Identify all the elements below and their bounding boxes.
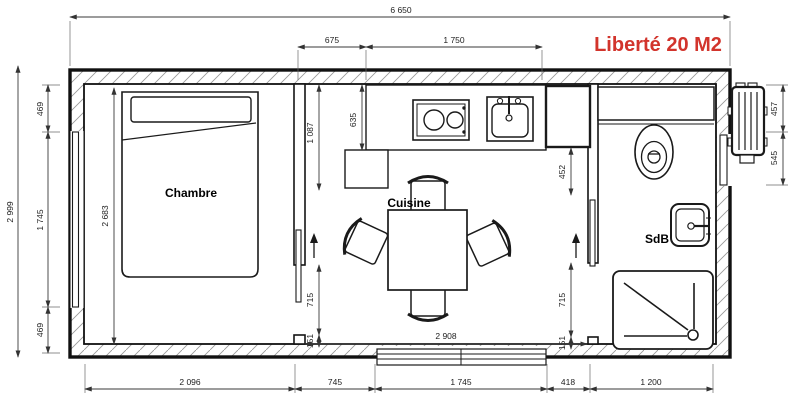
dim-top-kitchen-offset: 675 bbox=[325, 35, 339, 45]
dim-total-height: 2 999 bbox=[5, 201, 15, 223]
floorplan-page: Chambre bbox=[0, 0, 800, 411]
dim-heater-offset: 545 bbox=[769, 151, 779, 165]
plan-title: Liberté 20 M2 bbox=[594, 34, 722, 56]
dim-bottom-window-width: 1 745 bbox=[450, 377, 472, 387]
dim-bottom-bedroom-width: 2 096 bbox=[179, 377, 201, 387]
toilet-symbol bbox=[635, 125, 673, 179]
dim-bottom-bathroom-width: 1 200 bbox=[640, 377, 662, 387]
counter-return bbox=[345, 150, 388, 188]
hob-symbol bbox=[413, 100, 469, 140]
dim-left-wall-bottom: 469 bbox=[35, 323, 45, 337]
dim-bath-door-opening: 715 bbox=[557, 293, 567, 307]
bedroom-sliding-door bbox=[296, 230, 301, 302]
bedroom: Chambre bbox=[122, 92, 258, 277]
kitchen-label: Cuisine bbox=[387, 196, 431, 210]
dim-top-counter-width: 1 750 bbox=[443, 35, 465, 45]
pillow-symbol bbox=[131, 97, 251, 122]
kitchen-bay-window bbox=[377, 346, 546, 365]
bathroom-sink-symbol bbox=[671, 204, 711, 246]
dim-bedroom-door-opening: 715 bbox=[305, 293, 315, 307]
shower-symbol bbox=[613, 271, 713, 349]
dim-bedroom-door-offset: 151 bbox=[305, 334, 315, 348]
dim-bottom-partition: 745 bbox=[328, 377, 342, 387]
floorplan-canvas: Chambre bbox=[0, 0, 800, 411]
bedroom-label: Chambre bbox=[165, 186, 217, 200]
dining-table bbox=[388, 210, 467, 290]
bathroom-shelf bbox=[598, 87, 714, 120]
bathroom-label: SdB bbox=[645, 232, 669, 246]
dim-left-window: 1 745 bbox=[35, 209, 45, 231]
dim-bedroom-inner-height: 2 683 bbox=[100, 205, 110, 227]
dim-kitchen-inner-width: 2 908 bbox=[435, 331, 457, 341]
kitchen-sink-symbol bbox=[487, 96, 533, 141]
dim-bottom-wall-segment: 418 bbox=[561, 377, 575, 387]
bathroom-sliding-door bbox=[590, 200, 595, 266]
water-heater-symbol bbox=[728, 83, 767, 163]
dim-heater-height: 457 bbox=[769, 102, 779, 116]
kitchen-cabinet bbox=[546, 86, 590, 147]
dim-total-width: 6 650 bbox=[390, 5, 412, 15]
dim-counter-return-depth: 1 087 bbox=[305, 122, 315, 144]
dim-counter-depth: 635 bbox=[348, 113, 358, 127]
dim-bath-wall-top-offset: 452 bbox=[557, 165, 567, 179]
bedroom-window bbox=[71, 131, 84, 308]
dim-bath-door-offset: 151 bbox=[557, 336, 567, 350]
dim-left-wall-top: 469 bbox=[35, 102, 45, 116]
